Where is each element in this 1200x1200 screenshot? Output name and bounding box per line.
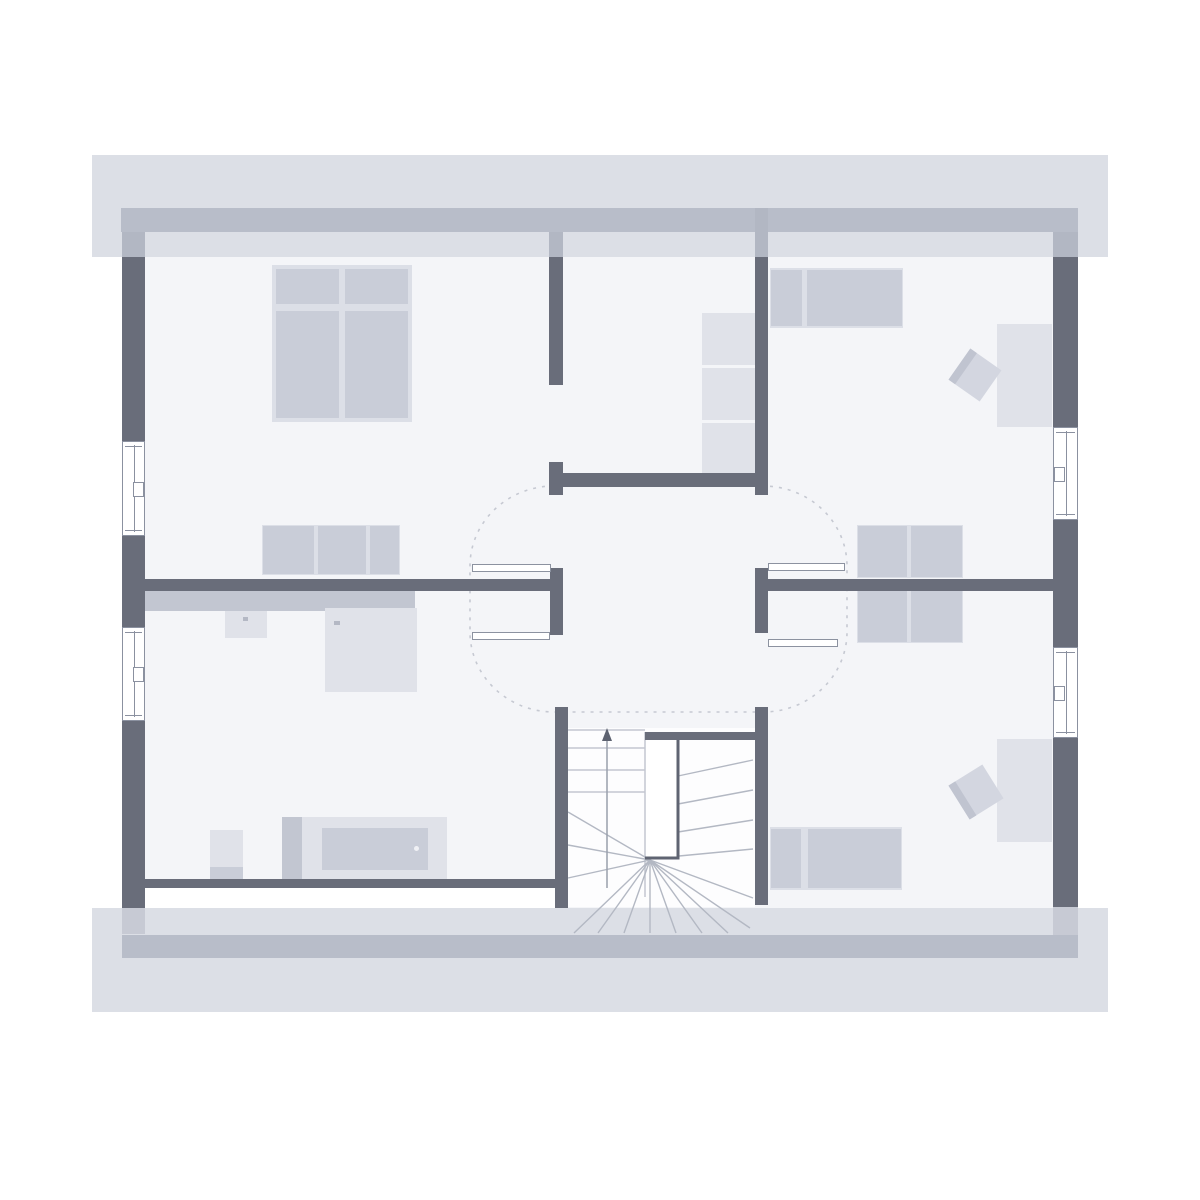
wall-stair-west xyxy=(555,707,568,908)
wall-bathroom-south xyxy=(122,879,557,888)
double-bed-mattress-left xyxy=(276,311,339,418)
window-left-upper xyxy=(122,441,145,536)
wall-footprint-bottom-right xyxy=(1053,907,1078,935)
bed-top-right-blanket xyxy=(807,270,902,326)
desk-bottom-right xyxy=(997,739,1052,842)
door-leaf-bedroom xyxy=(472,564,551,572)
wall-dressing-south xyxy=(562,473,755,487)
stair-void xyxy=(645,740,678,858)
wall-footprint-top-left xyxy=(122,232,145,257)
wall-footprint-top-right xyxy=(1053,232,1078,257)
shower-head-icon xyxy=(334,621,340,625)
wall-bedroom-bathroom xyxy=(122,579,550,591)
sideboard-section-1 xyxy=(263,526,314,574)
shelf-unit-section-3 xyxy=(702,423,755,473)
window-frame-line xyxy=(125,715,142,716)
bathtub-drain-icon xyxy=(414,846,419,851)
wall-ext-right-mid xyxy=(1053,520,1078,647)
bathtub-head-end xyxy=(282,817,302,881)
roof-edge-strip-bottom xyxy=(122,935,1078,958)
window-right-lower xyxy=(1053,647,1078,738)
window-frame-line xyxy=(1056,514,1075,515)
door-leaf-bathroom xyxy=(472,632,550,640)
bathtub-basin xyxy=(322,828,428,870)
double-bed-pillow-left xyxy=(276,269,339,304)
wall-stair-east xyxy=(755,707,768,905)
bed-bottom-right-pillow xyxy=(771,829,801,888)
door-leaf-room-bottom-right xyxy=(768,639,838,647)
window-mullion xyxy=(1066,651,1067,734)
window-frame-line xyxy=(125,530,142,531)
roof-edge-strip-top xyxy=(121,208,1078,232)
dresser-top-right-a xyxy=(858,526,907,577)
bed-bottom-right-blanket xyxy=(808,829,901,888)
window-handle-icon xyxy=(1054,686,1065,701)
window-mullion xyxy=(1066,431,1067,516)
roof-overhang-top xyxy=(92,155,1108,257)
wall-footprint-closet-west xyxy=(549,232,563,257)
dresser-bottom-right-a xyxy=(858,591,907,642)
double-bed-mattress-right xyxy=(345,311,408,418)
wall-footprint-closet-east xyxy=(755,208,768,257)
wall-stair-north xyxy=(645,732,755,740)
window-right-upper xyxy=(1053,427,1078,520)
bed-top-right-pillow xyxy=(771,270,802,326)
wall-ext-right-upper xyxy=(1053,257,1078,427)
sideboard-section-2 xyxy=(318,526,366,574)
double-bed-pillow-right xyxy=(345,269,408,304)
room-hallway xyxy=(563,487,755,732)
sideboard-section-3 xyxy=(370,526,399,574)
dresser-bottom-right-b xyxy=(911,591,962,642)
wall-dressing-east xyxy=(755,257,768,495)
washbasin xyxy=(225,611,267,638)
desk-top-right xyxy=(997,324,1052,427)
bathroom-window-band xyxy=(145,888,555,908)
shelf-unit-section-1 xyxy=(702,313,755,365)
washbasin-tap-icon xyxy=(243,617,248,621)
dresser-top-right-b xyxy=(911,526,962,577)
shelf-unit-section-2 xyxy=(702,368,755,420)
wall-rooms-right-divider xyxy=(768,579,1053,591)
window-frame-line xyxy=(1056,732,1075,733)
window-handle-icon xyxy=(133,667,144,682)
wall-dressing-south-pier xyxy=(549,462,563,495)
floor-plan-canvas xyxy=(0,0,1200,1200)
wall-ext-right-lower xyxy=(1053,738,1078,907)
wall-ext-left-upper xyxy=(122,257,145,441)
door-leaf-room-top-right xyxy=(768,563,845,571)
window-frame-line xyxy=(1056,652,1075,653)
window-handle-icon xyxy=(1054,467,1065,482)
wc-bowl xyxy=(210,830,243,867)
window-frame-line xyxy=(125,632,142,633)
wall-bedroom-dressing xyxy=(549,257,563,385)
wall-footprint-bottom-left xyxy=(122,908,145,934)
wall-hall-pier-west xyxy=(550,568,563,635)
window-frame-line xyxy=(1056,432,1075,433)
window-handle-icon xyxy=(133,482,144,497)
wall-hall-pier-east xyxy=(755,568,768,633)
window-frame-line xyxy=(125,446,142,447)
window-left-lower xyxy=(122,627,145,721)
